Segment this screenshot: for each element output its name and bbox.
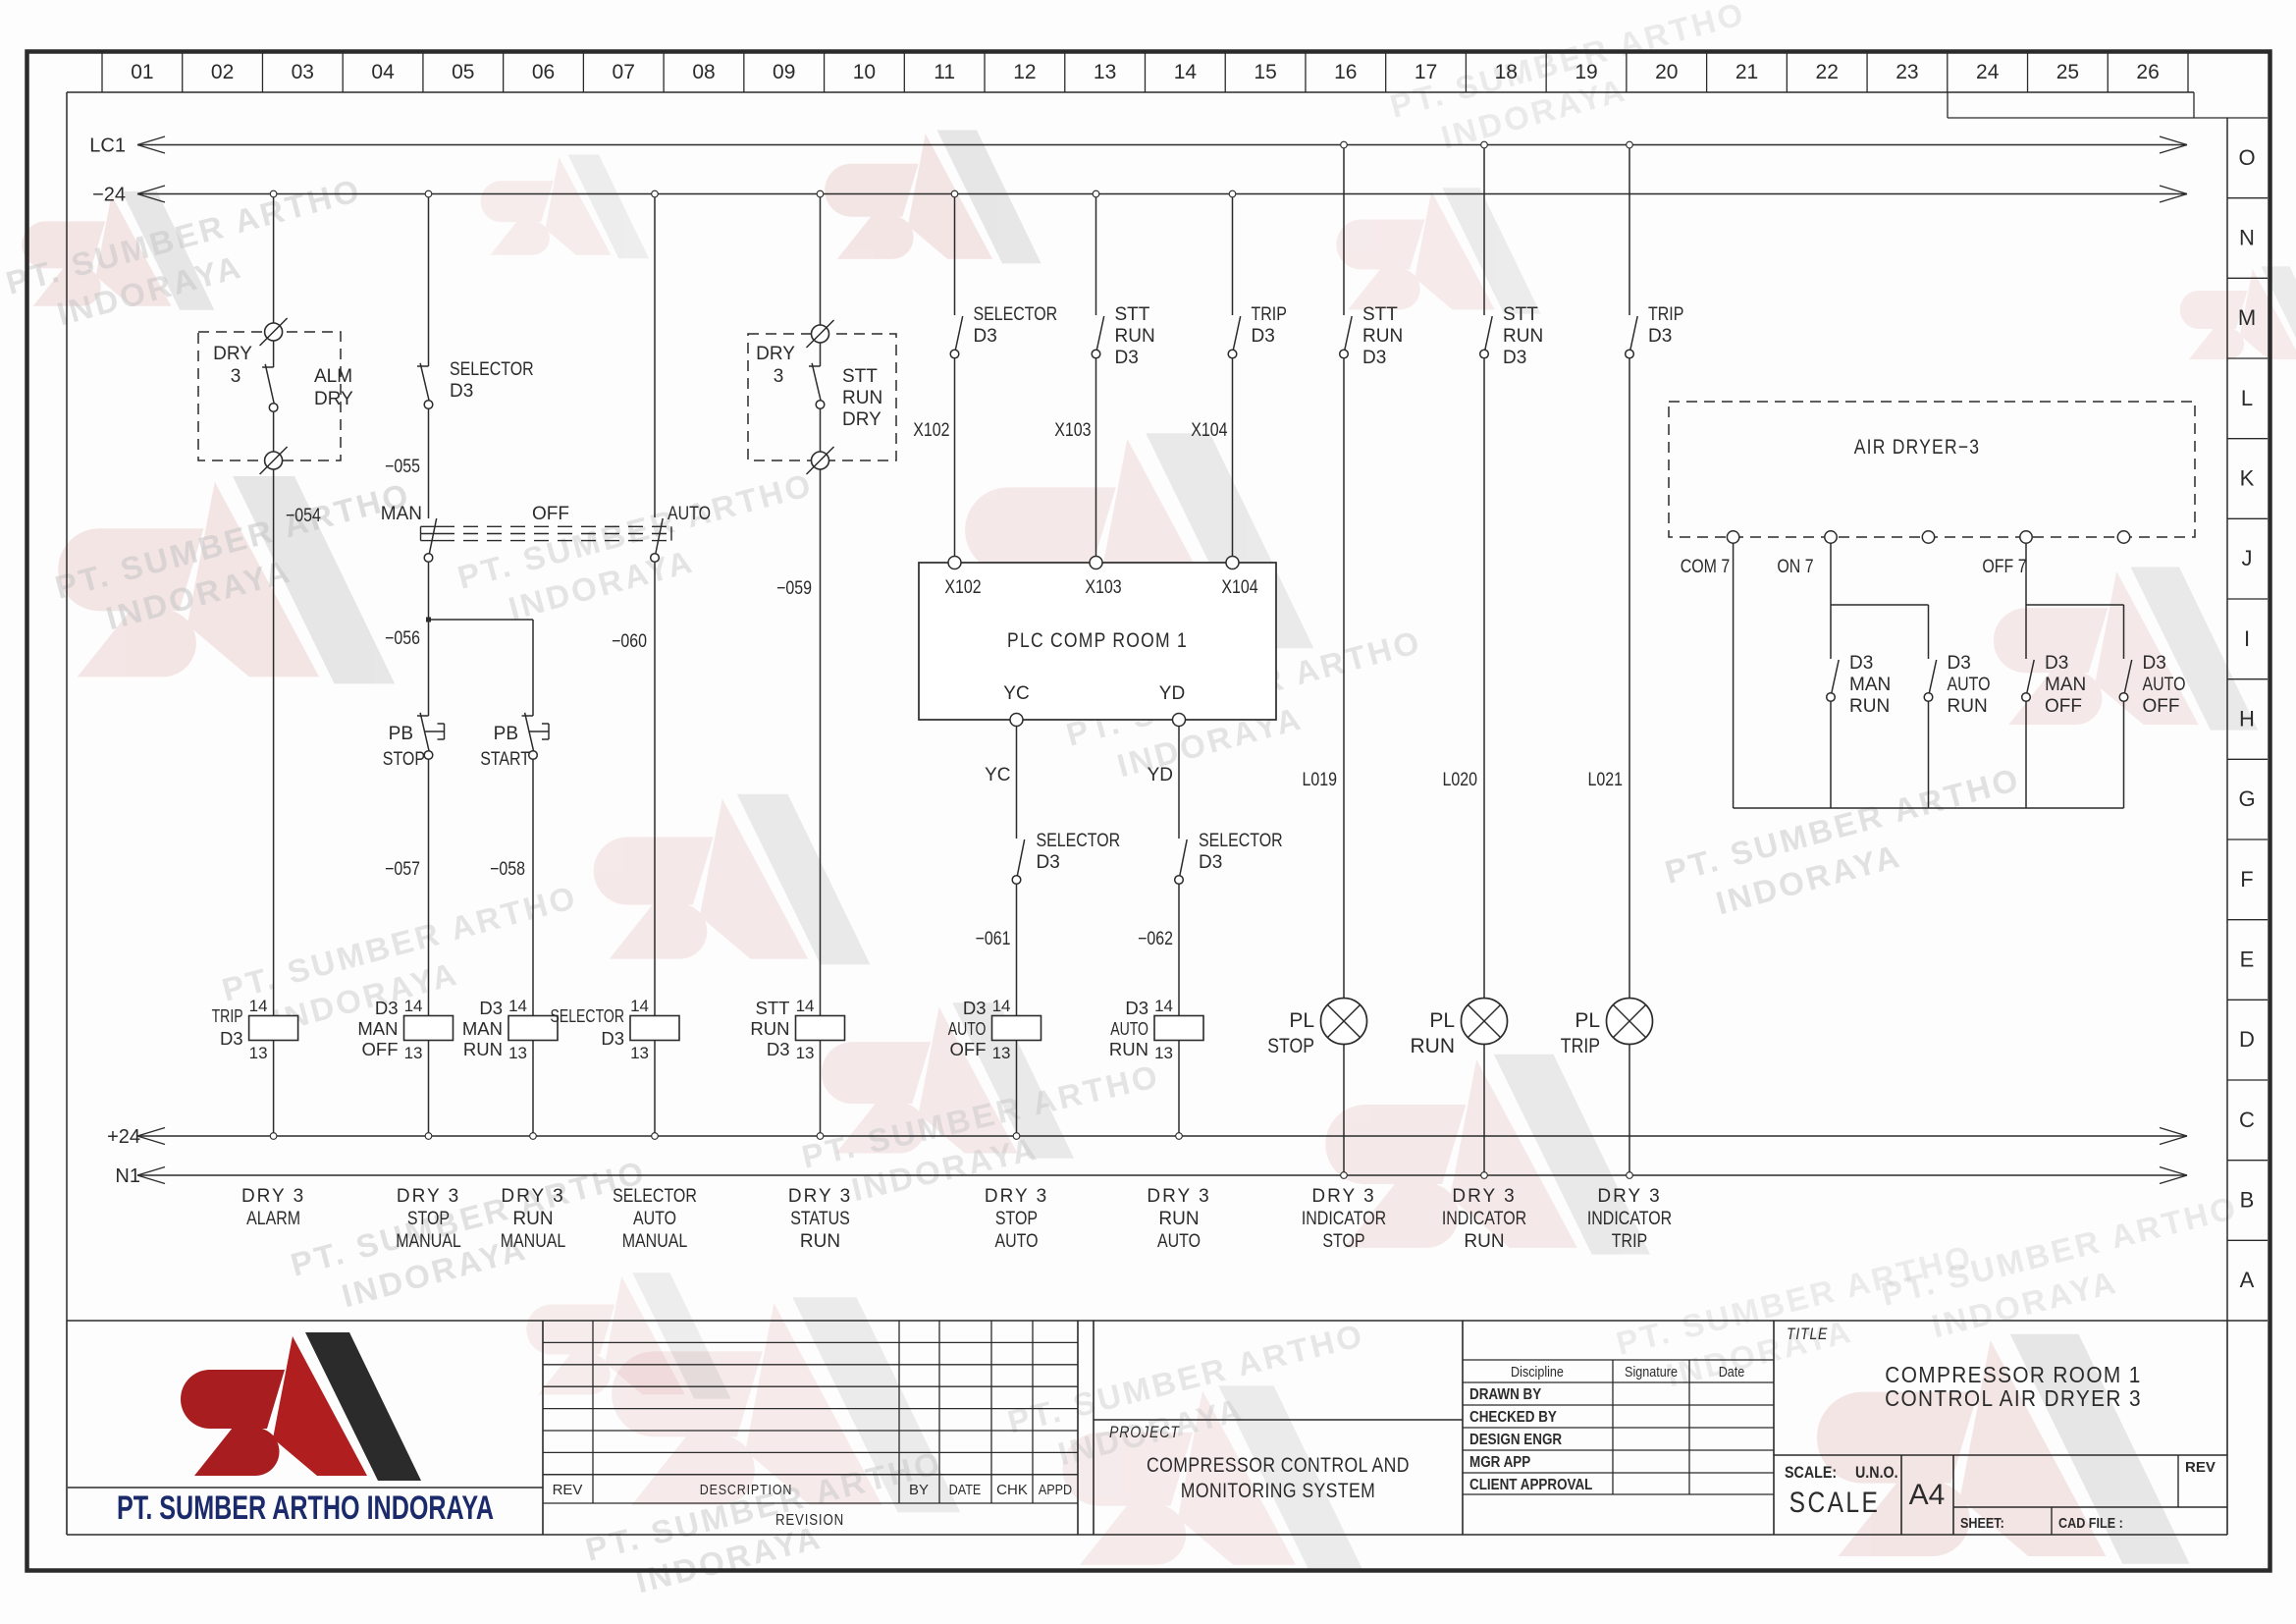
svg-text:X103: X103: [1085, 577, 1121, 598]
svg-text:ALARM: ALARM: [246, 1209, 300, 1229]
svg-text:U.N.O.: U.N.O.: [1855, 1463, 1898, 1482]
svg-text:STT: STT: [1115, 304, 1150, 325]
svg-text:PB: PB: [494, 724, 518, 744]
svg-text:−062: −062: [1138, 929, 1173, 949]
svg-text:23: 23: [1896, 61, 1918, 83]
svg-text:RUN: RUN: [1158, 1209, 1199, 1229]
svg-text:D3: D3: [974, 326, 997, 347]
svg-text:MANUAL: MANUAL: [622, 1231, 688, 1252]
svg-text:DRY 3: DRY 3: [1147, 1186, 1210, 1207]
svg-text:APPD: APPD: [1039, 1482, 1072, 1498]
svg-text:18: 18: [1495, 61, 1518, 83]
svg-text:AUTO: AUTO: [1110, 1018, 1148, 1039]
svg-text:A4: A4: [1909, 1479, 1946, 1511]
svg-text:COMPRESSOR CONTROL AND: COMPRESSOR CONTROL AND: [1147, 1454, 1410, 1477]
svg-text:SHEET:: SHEET:: [1960, 1515, 2004, 1532]
svg-text:BY: BY: [909, 1482, 929, 1498]
svg-text:STATUS: STATUS: [790, 1209, 850, 1229]
svg-text:DATE: DATE: [949, 1482, 982, 1498]
svg-text:MONITORING SYSTEM: MONITORING SYSTEM: [1181, 1480, 1376, 1502]
svg-text:DRY: DRY: [842, 409, 881, 430]
svg-text:PT. SUMBER ARTHO INDORAYA: PT. SUMBER ARTHO INDORAYA: [117, 1489, 494, 1527]
svg-text:ON 7: ON 7: [1777, 557, 1813, 577]
svg-text:14: 14: [796, 997, 815, 1015]
svg-text:DRY 3: DRY 3: [985, 1186, 1048, 1207]
svg-text:LC1: LC1: [89, 135, 126, 157]
svg-text:RUN: RUN: [842, 388, 882, 408]
svg-text:RUN: RUN: [1464, 1231, 1504, 1252]
svg-text:A: A: [2240, 1268, 2255, 1292]
svg-text:MGR APP: MGR APP: [1469, 1454, 1530, 1471]
svg-text:OFF: OFF: [950, 1039, 987, 1059]
svg-text:PL: PL: [1575, 1009, 1600, 1032]
svg-text:DRY 3: DRY 3: [1452, 1186, 1516, 1207]
svg-text:YC: YC: [985, 765, 1010, 785]
svg-text:STT: STT: [842, 366, 878, 387]
svg-text:OFF 7: OFF 7: [1982, 557, 2026, 577]
svg-text:C: C: [2239, 1108, 2255, 1132]
svg-text:D3: D3: [1648, 326, 1672, 347]
svg-text:YD: YD: [1148, 765, 1173, 785]
svg-text:D3: D3: [479, 998, 503, 1018]
svg-text:OFF: OFF: [532, 504, 569, 524]
svg-text:DESCRIPTION: DESCRIPTION: [700, 1482, 793, 1498]
svg-text:B: B: [2240, 1188, 2255, 1213]
svg-text:03: 03: [292, 61, 314, 83]
svg-text:D3: D3: [1125, 998, 1148, 1018]
svg-text:YC: YC: [1003, 683, 1029, 704]
svg-text:MAN: MAN: [462, 1018, 503, 1039]
svg-text:21: 21: [1735, 61, 1758, 83]
svg-text:−24: −24: [92, 185, 126, 206]
svg-text:Signature: Signature: [1625, 1364, 1678, 1380]
svg-text:INDICATOR: INDICATOR: [1587, 1209, 1672, 1229]
svg-text:AUTO: AUTO: [667, 504, 711, 524]
svg-text:14: 14: [1174, 61, 1198, 83]
svg-text:−055: −055: [385, 457, 420, 477]
svg-text:J: J: [2242, 546, 2253, 570]
svg-text:25: 25: [2056, 61, 2079, 83]
svg-text:DESIGN ENGR: DESIGN ENGR: [1469, 1432, 1562, 1448]
svg-text:TRIP: TRIP: [1612, 1231, 1647, 1252]
svg-text:DRY 3: DRY 3: [1311, 1186, 1375, 1207]
svg-text:13: 13: [249, 1044, 268, 1062]
svg-text:TRIP: TRIP: [1252, 304, 1287, 325]
svg-text:RUN: RUN: [1849, 696, 1890, 717]
svg-text:DRY 3: DRY 3: [397, 1186, 460, 1207]
svg-text:X103: X103: [1054, 420, 1091, 441]
svg-text:15: 15: [1254, 61, 1276, 83]
svg-text:AUTO: AUTO: [2143, 675, 2186, 695]
svg-text:D: D: [2239, 1027, 2255, 1052]
svg-text:17: 17: [1415, 61, 1437, 83]
svg-text:N: N: [2239, 226, 2255, 250]
svg-text:G: G: [2238, 786, 2255, 811]
svg-text:MAN: MAN: [1849, 675, 1891, 695]
svg-text:16: 16: [1334, 61, 1357, 83]
svg-text:02: 02: [211, 61, 234, 83]
svg-text:19: 19: [1575, 61, 1597, 83]
svg-text:−059: −059: [776, 578, 812, 599]
svg-text:RUN: RUN: [1948, 696, 1988, 717]
svg-text:RUN: RUN: [1503, 326, 1543, 347]
svg-text:05: 05: [452, 61, 474, 83]
svg-text:RUN: RUN: [800, 1231, 840, 1252]
svg-text:AUTO: AUTO: [1948, 675, 1991, 695]
svg-text:14: 14: [508, 997, 527, 1015]
svg-text:D3: D3: [1115, 348, 1139, 368]
svg-text:CLIENT APPROVAL: CLIENT APPROVAL: [1469, 1477, 1593, 1493]
svg-text:COM 7: COM 7: [1681, 557, 1731, 577]
svg-text:DRY: DRY: [756, 344, 795, 364]
svg-text:I: I: [2244, 626, 2250, 651]
svg-text:REV: REV: [2185, 1459, 2216, 1476]
svg-text:D3: D3: [1849, 653, 1873, 674]
svg-text:DRY 3: DRY 3: [1597, 1186, 1661, 1207]
svg-text:MANUAL: MANUAL: [501, 1231, 566, 1252]
svg-text:CONTROL AIR DRYER 3: CONTROL AIR DRYER 3: [1885, 1385, 2142, 1411]
svg-text:D3: D3: [601, 1028, 624, 1049]
svg-text:MAN: MAN: [2045, 675, 2086, 695]
svg-text:STOP: STOP: [383, 749, 425, 770]
svg-text:D3: D3: [1037, 852, 1060, 873]
svg-text:CAD FILE :: CAD FILE :: [2058, 1515, 2123, 1532]
svg-text:14: 14: [992, 997, 1011, 1015]
svg-text:COMPRESSOR ROOM 1: COMPRESSOR ROOM 1: [1885, 1362, 2141, 1387]
svg-text:PLC COMP ROOM 1: PLC COMP ROOM 1: [1007, 629, 1188, 652]
svg-text:SELECTOR: SELECTOR: [974, 304, 1058, 325]
svg-text:13: 13: [404, 1044, 423, 1062]
svg-text:26: 26: [2136, 61, 2159, 83]
svg-text:OFF: OFF: [2143, 696, 2180, 717]
svg-text:RUN: RUN: [1109, 1039, 1148, 1059]
svg-text:X104: X104: [1221, 577, 1258, 598]
svg-text:TRIP: TRIP: [1648, 304, 1683, 325]
svg-text:STT: STT: [1503, 304, 1538, 325]
svg-text:YD: YD: [1159, 683, 1185, 704]
svg-text:PL: PL: [1429, 1009, 1455, 1032]
svg-text:DRAWN BY: DRAWN BY: [1469, 1386, 1541, 1403]
svg-text:K: K: [2240, 466, 2255, 491]
svg-text:DRY: DRY: [314, 389, 353, 409]
svg-text:TITLE: TITLE: [1787, 1325, 1828, 1343]
svg-text:AUTO: AUTO: [995, 1231, 1039, 1252]
svg-text:RUN: RUN: [1362, 326, 1403, 347]
svg-text:09: 09: [773, 61, 795, 83]
svg-text:SCALE: SCALE: [1789, 1487, 1881, 1519]
svg-text:13: 13: [1094, 61, 1116, 83]
svg-text:M: M: [2238, 305, 2256, 330]
svg-text:SELECTOR: SELECTOR: [1037, 831, 1121, 851]
svg-text:D3: D3: [1252, 326, 1275, 347]
svg-text:SELECTOR: SELECTOR: [551, 1005, 625, 1026]
svg-text:L019: L019: [1303, 770, 1338, 790]
svg-text:−057: −057: [385, 859, 420, 880]
svg-text:DRY 3: DRY 3: [241, 1186, 305, 1207]
svg-text:06: 06: [532, 61, 555, 83]
svg-text:F: F: [2240, 867, 2253, 892]
svg-text:D3: D3: [1199, 852, 1222, 873]
svg-text:REVISION: REVISION: [775, 1512, 844, 1529]
svg-text:13: 13: [508, 1044, 527, 1062]
svg-text:L021: L021: [1588, 770, 1624, 790]
svg-text:SELECTOR: SELECTOR: [450, 359, 534, 380]
svg-text:11: 11: [934, 61, 955, 83]
svg-text:14: 14: [630, 997, 649, 1015]
svg-text:DRY: DRY: [213, 344, 252, 364]
svg-text:STT: STT: [756, 998, 790, 1018]
svg-text:E: E: [2240, 947, 2255, 972]
svg-text:RUN: RUN: [512, 1209, 553, 1229]
svg-text:14: 14: [249, 997, 268, 1015]
svg-text:12: 12: [1013, 61, 1036, 83]
svg-text:AIR DRYER−3: AIR DRYER−3: [1854, 436, 1981, 459]
svg-text:14: 14: [404, 997, 423, 1015]
svg-text:−054: −054: [286, 506, 321, 526]
svg-text:D3: D3: [1362, 348, 1386, 368]
svg-text:INDICATOR: INDICATOR: [1302, 1209, 1386, 1229]
svg-text:TRIP: TRIP: [1561, 1035, 1600, 1057]
svg-text:13: 13: [630, 1044, 649, 1062]
svg-text:SELECTOR: SELECTOR: [613, 1186, 697, 1207]
svg-text:01: 01: [131, 61, 153, 83]
svg-text:D3: D3: [450, 381, 473, 402]
svg-text:D3: D3: [375, 998, 399, 1018]
svg-text:AUTO: AUTO: [633, 1209, 676, 1229]
svg-text:X102: X102: [913, 420, 949, 441]
svg-text:PL: PL: [1289, 1009, 1314, 1032]
svg-text:−056: −056: [385, 628, 420, 649]
svg-text:RUN: RUN: [463, 1039, 503, 1059]
svg-text:AUTO: AUTO: [1157, 1231, 1201, 1252]
svg-text:20: 20: [1655, 61, 1678, 83]
svg-text:REV: REV: [553, 1482, 583, 1498]
svg-text:O: O: [2238, 145, 2255, 170]
svg-text:D3: D3: [2045, 653, 2068, 674]
svg-text:MANUAL: MANUAL: [396, 1231, 461, 1252]
svg-text:START: START: [480, 749, 530, 770]
svg-text:L020: L020: [1443, 770, 1478, 790]
svg-text:D3: D3: [2143, 653, 2166, 674]
svg-text:D3: D3: [1503, 348, 1526, 368]
svg-text:−060: −060: [612, 631, 647, 652]
svg-text:04: 04: [371, 61, 395, 83]
svg-text:AUTO: AUTO: [948, 1018, 987, 1039]
svg-text:−061: −061: [976, 929, 1011, 949]
svg-text:D3: D3: [220, 1028, 243, 1049]
svg-text:13: 13: [992, 1044, 1011, 1062]
svg-text:RUN: RUN: [1115, 326, 1155, 347]
svg-text:07: 07: [613, 61, 635, 83]
svg-text:D3: D3: [767, 1039, 790, 1059]
svg-text:D3: D3: [1948, 653, 1971, 674]
svg-text:13: 13: [796, 1044, 815, 1062]
svg-text:INDICATOR: INDICATOR: [1442, 1209, 1526, 1229]
svg-text:22: 22: [1816, 61, 1839, 83]
svg-text:H: H: [2239, 707, 2255, 731]
svg-text:STT: STT: [1362, 304, 1398, 325]
svg-text:SELECTOR: SELECTOR: [1199, 831, 1283, 851]
svg-text:OFF: OFF: [2045, 696, 2082, 717]
svg-text:−058: −058: [490, 859, 525, 880]
svg-text:OFF: OFF: [362, 1039, 399, 1059]
svg-text:RUN: RUN: [1411, 1035, 1456, 1057]
svg-text:ALM: ALM: [314, 366, 352, 387]
svg-text:STOP: STOP: [1322, 1231, 1364, 1252]
svg-text:PROJECT: PROJECT: [1109, 1423, 1180, 1441]
svg-text:10: 10: [853, 61, 876, 83]
svg-text:+24: +24: [107, 1126, 140, 1148]
svg-text:STOP: STOP: [1267, 1035, 1314, 1057]
svg-text:MAN: MAN: [357, 1018, 398, 1039]
svg-text:SCALE:: SCALE:: [1785, 1463, 1837, 1482]
svg-text:DRY 3: DRY 3: [788, 1186, 852, 1207]
svg-text:STOP: STOP: [995, 1209, 1038, 1229]
svg-text:MAN: MAN: [381, 504, 422, 524]
svg-text:14: 14: [1154, 997, 1173, 1015]
svg-text:13: 13: [1154, 1044, 1173, 1062]
svg-text:TRIP: TRIP: [212, 1005, 243, 1026]
svg-text:N1: N1: [115, 1165, 140, 1187]
svg-text:DRY 3: DRY 3: [501, 1186, 564, 1207]
svg-text:CHECKED BY: CHECKED BY: [1469, 1409, 1557, 1426]
svg-text:D3: D3: [963, 998, 987, 1018]
svg-text:3: 3: [774, 366, 784, 387]
svg-text:Discipline: Discipline: [1511, 1364, 1564, 1380]
svg-text:X102: X102: [944, 577, 981, 598]
svg-text:PB: PB: [389, 724, 413, 744]
svg-text:RUN: RUN: [750, 1018, 789, 1039]
svg-text:24: 24: [1976, 61, 2000, 83]
svg-text:X104: X104: [1191, 420, 1228, 441]
svg-text:Date: Date: [1719, 1364, 1745, 1380]
svg-text:L: L: [2241, 386, 2253, 410]
svg-text:08: 08: [692, 61, 715, 83]
svg-text:CHK: CHK: [996, 1482, 1028, 1498]
svg-text:STOP: STOP: [407, 1209, 450, 1229]
svg-text:3: 3: [231, 366, 241, 387]
